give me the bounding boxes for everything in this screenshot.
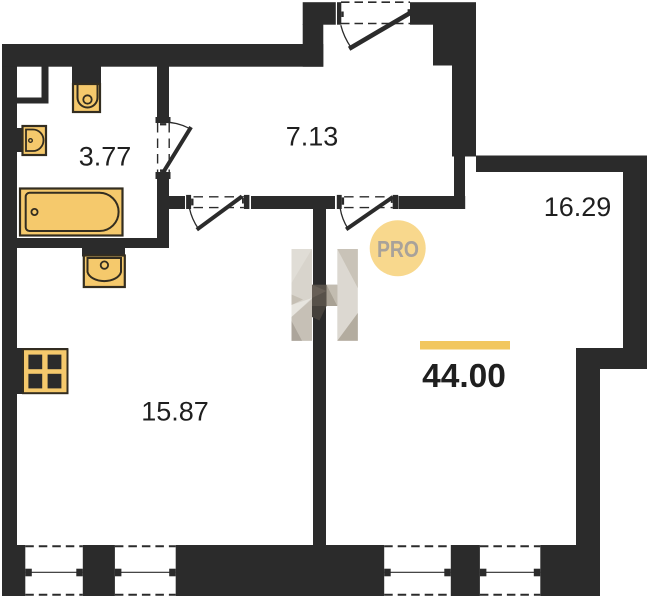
svg-text:15.87: 15.87 [141, 396, 209, 426]
svg-text:PRO: PRO [377, 236, 419, 262]
svg-text:7.13: 7.13 [286, 122, 339, 152]
svg-text:16.29: 16.29 [544, 192, 612, 222]
svg-text:44.00: 44.00 [422, 358, 506, 395]
svg-text:3.77: 3.77 [79, 141, 132, 171]
